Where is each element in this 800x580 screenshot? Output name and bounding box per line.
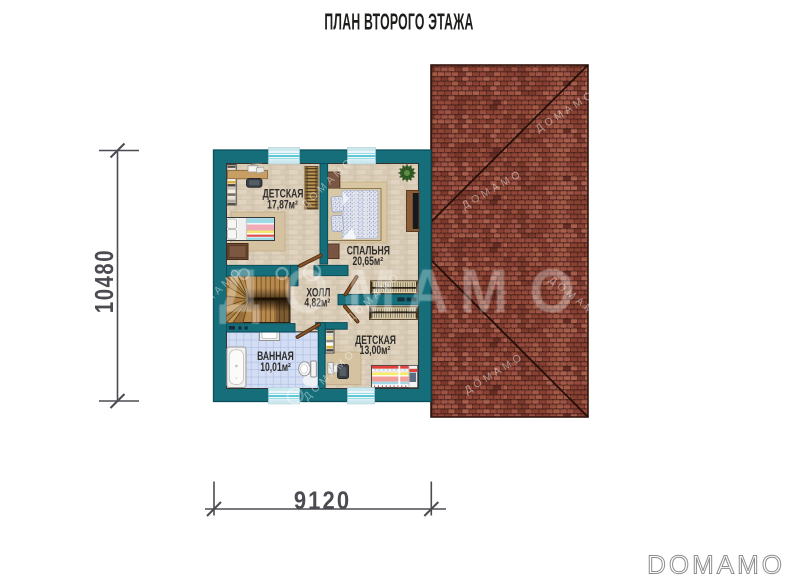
svg-text:17,87м²: 17,87м²	[267, 200, 298, 213]
svg-text:10480: 10480	[90, 249, 119, 313]
svg-text:10,01м²: 10,01м²	[260, 362, 291, 375]
svg-text:13,00м²: 13,00м²	[360, 345, 391, 358]
svg-text:9120: 9120	[294, 487, 351, 515]
svg-text:ПЛАН ВТОРОГО ЭТАЖА: ПЛАН ВТОРОГО ЭТАЖА	[324, 8, 473, 34]
svg-text:М: М	[460, 257, 508, 326]
svg-text:А: А	[407, 257, 449, 326]
svg-text:DOMAMO: DOMAMO	[647, 550, 785, 580]
